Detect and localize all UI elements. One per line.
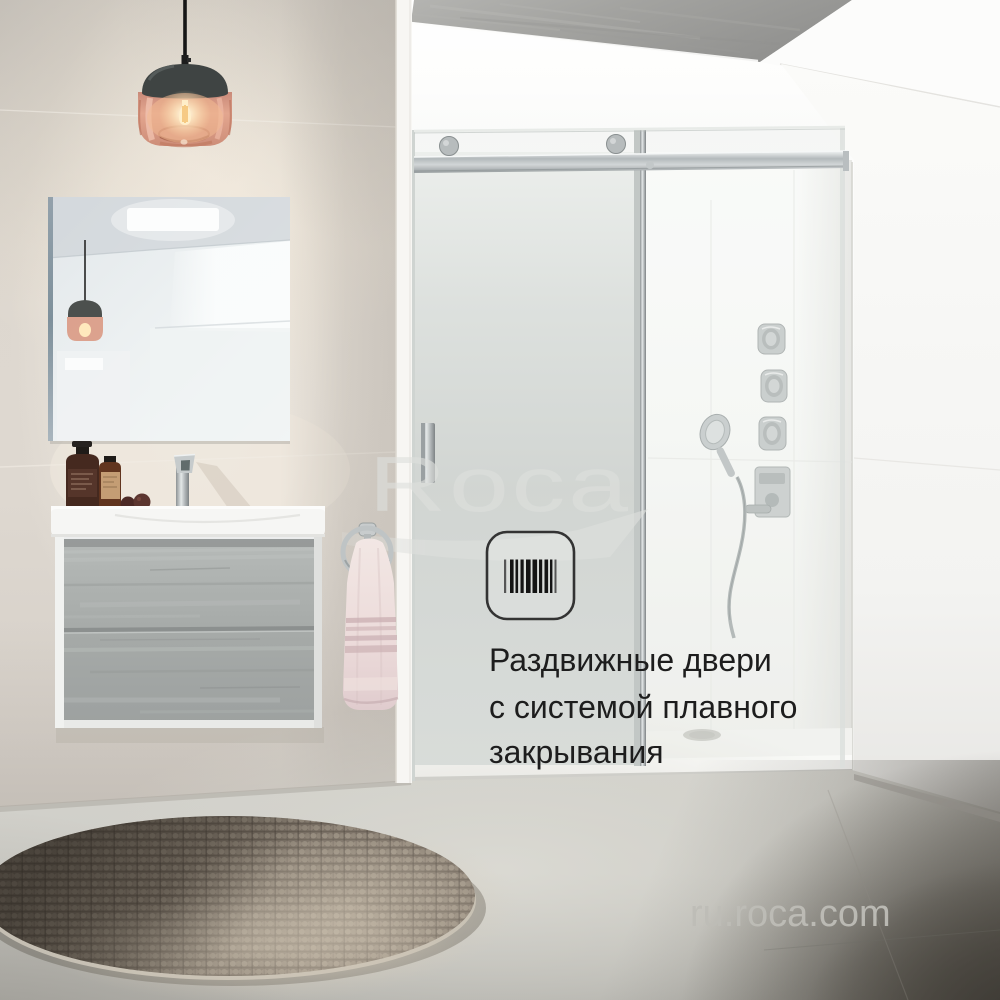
svg-text:закрывания: закрывания [489, 734, 664, 770]
svg-text:Roca: Roca [368, 440, 630, 527]
svg-text:с системой плавного: с системой плавного [489, 689, 797, 725]
svg-text:ru.roca.com: ru.roca.com [690, 893, 891, 935]
svg-text:Раздвижные двери: Раздвижные двери [489, 642, 772, 678]
